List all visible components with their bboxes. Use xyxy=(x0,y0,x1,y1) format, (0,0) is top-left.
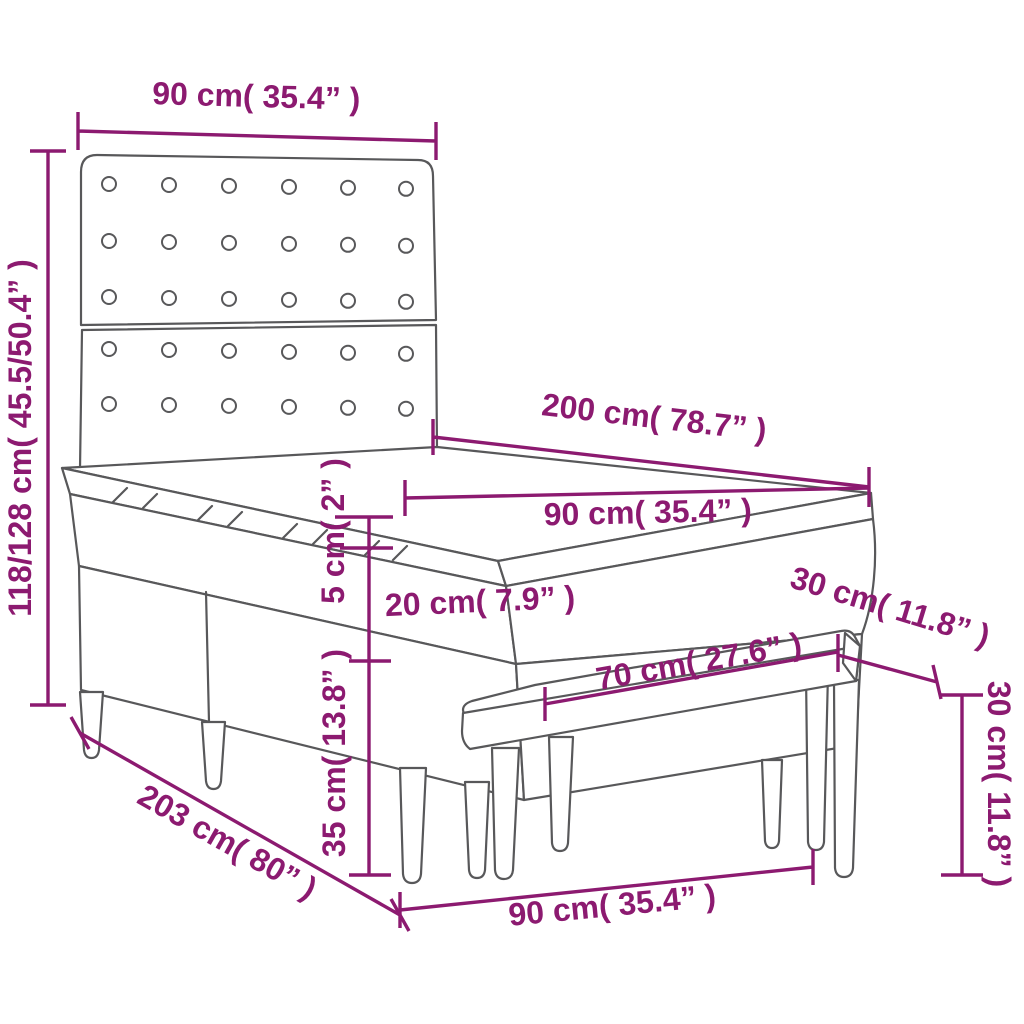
headboard-button xyxy=(222,399,236,413)
headboard-button xyxy=(399,402,413,416)
headboard-button xyxy=(102,234,116,248)
headboard-button xyxy=(282,345,296,359)
bench-leg xyxy=(806,673,828,850)
headboard-button xyxy=(162,343,176,357)
headboard-button xyxy=(282,180,296,194)
bed-leg xyxy=(465,782,489,878)
dim-bench-height-line xyxy=(941,695,983,875)
dim-overall-height-label: 118/128 cm( 45.5/50.4” ) xyxy=(2,259,38,617)
bed-drawing xyxy=(62,155,875,883)
headboard-button xyxy=(162,178,176,192)
headboard-button xyxy=(162,235,176,249)
headboard-upper-panel xyxy=(81,155,436,325)
headboard-lower-panel xyxy=(80,325,437,469)
dim-headboard-width: 90 cm( 35.4” ) xyxy=(78,75,436,160)
headboard-button xyxy=(399,347,413,361)
headboard-button xyxy=(162,291,176,305)
headboard-button xyxy=(341,346,355,360)
dim-headboard-width-label: 90 cm( 35.4” ) xyxy=(152,75,361,117)
headboard-button xyxy=(102,342,116,356)
headboard-button xyxy=(399,295,413,309)
headboard-button xyxy=(341,294,355,308)
headboard-button xyxy=(341,181,355,195)
bench-leg xyxy=(549,737,573,851)
bed-leg xyxy=(80,692,103,758)
headboard-button xyxy=(341,238,355,252)
dim-bed-length-label: 200 cm( 78.7” ) xyxy=(540,386,769,448)
bench-leg xyxy=(834,680,859,877)
headboard-button xyxy=(222,344,236,358)
bed-dimension-diagram: 90 cm( 35.4” ) 118/128 cm( 45.5/50.4” ) … xyxy=(0,0,1024,1024)
headboard-button xyxy=(282,237,296,251)
headboard-button xyxy=(222,236,236,250)
headboard-button xyxy=(399,239,413,253)
headboard-button xyxy=(102,290,116,304)
bench-leg xyxy=(492,748,519,879)
dim-mattress-width-label: 90 cm( 35.4” ) xyxy=(543,492,752,533)
headboard-button xyxy=(399,182,413,196)
headboard-button xyxy=(222,179,236,193)
bed-leg xyxy=(400,768,426,883)
bed-leg xyxy=(202,722,225,789)
headboard-button xyxy=(162,398,176,412)
diagram-canvas: 90 cm( 35.4” ) 118/128 cm( 45.5/50.4” ) … xyxy=(0,0,1024,1024)
dim-bench-height: 30 cm( 11.8” ) xyxy=(941,681,1017,887)
headboard-button xyxy=(222,292,236,306)
dim-topper-thickness-label: 5 cm( 2” ) xyxy=(315,458,351,604)
dim-bench-overall-length: 90 cm( 35.4” ) xyxy=(400,849,813,933)
dim-frame-length-label: 203 cm( 80” ) xyxy=(132,777,323,906)
headboard-button xyxy=(102,177,116,191)
headboard-button xyxy=(282,400,296,414)
dim-overall-height: 118/128 cm( 45.5/50.4” ) xyxy=(2,151,66,705)
bed-leg xyxy=(762,760,782,848)
dim-bench-overall-length-label: 90 cm( 35.4” ) xyxy=(507,877,718,933)
headboard-button xyxy=(282,293,296,307)
headboard-button xyxy=(102,397,116,411)
dim-base-height-label: 35 cm( 13.8” ) xyxy=(316,649,352,857)
headboard-button xyxy=(341,401,355,415)
dim-bench-height-label: 30 cm( 11.8” ) xyxy=(981,681,1017,887)
dim-headboard-width-line xyxy=(78,112,436,160)
